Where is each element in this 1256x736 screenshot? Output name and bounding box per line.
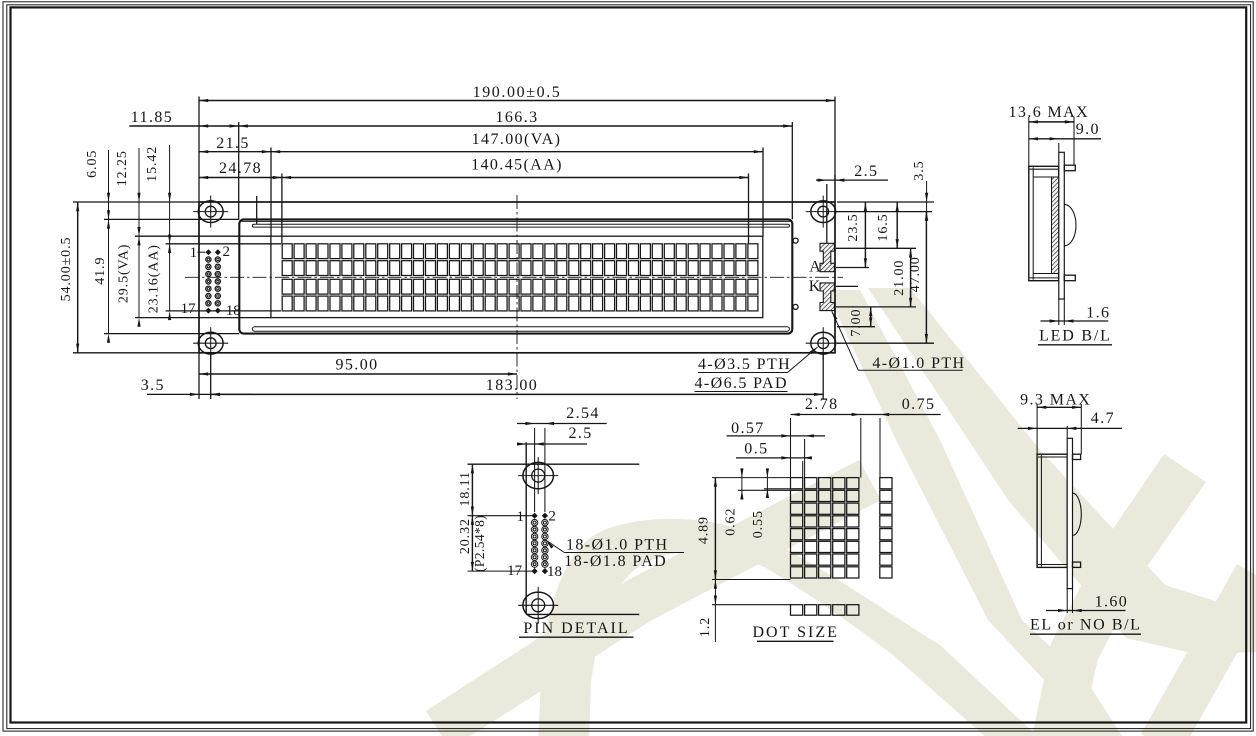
svg-text:4-Ø6.5 PAD: 4-Ø6.5 PAD: [695, 375, 788, 392]
svg-text:17: 17: [181, 301, 197, 317]
svg-text:(P2.54*8): (P2.54*8): [472, 515, 487, 572]
svg-text:4.89: 4.89: [697, 516, 712, 544]
svg-text:1.60: 1.60: [1095, 594, 1129, 611]
svg-text:16.5: 16.5: [876, 213, 891, 241]
svg-text:2.5: 2.5: [854, 163, 878, 180]
svg-text:3.5: 3.5: [912, 160, 927, 180]
svg-text:15.42: 15.42: [145, 146, 160, 182]
svg-text:47.00: 47.00: [908, 256, 923, 292]
svg-text:1: 1: [190, 245, 198, 261]
svg-text:0.5: 0.5: [744, 441, 768, 458]
svg-text:23.16(AA): 23.16(AA): [146, 244, 161, 313]
svg-text:0.57: 0.57: [731, 420, 765, 437]
svg-text:9.0: 9.0: [1076, 121, 1100, 138]
svg-text:4.7: 4.7: [1091, 410, 1115, 427]
svg-text:1.6: 1.6: [1086, 305, 1110, 322]
svg-text:EL or NO B/L: EL or NO B/L: [1030, 617, 1141, 634]
svg-text:18-Ø1.8 PAD: 18-Ø1.8 PAD: [564, 553, 667, 570]
svg-text:41.9: 41.9: [93, 257, 108, 285]
svg-text:4-Ø1.0 PTH: 4-Ø1.0 PTH: [872, 355, 965, 372]
svg-text:1.2: 1.2: [698, 617, 713, 637]
svg-text:183.00: 183.00: [486, 377, 538, 394]
svg-text:0.62: 0.62: [724, 508, 739, 536]
svg-text:1: 1: [517, 509, 525, 525]
svg-text:9.3 MAX: 9.3 MAX: [1020, 392, 1091, 409]
svg-text:2.5: 2.5: [568, 425, 592, 442]
svg-text:3.5: 3.5: [141, 377, 165, 394]
svg-text:95.00: 95.00: [336, 357, 379, 374]
svg-text:2.54: 2.54: [566, 405, 600, 422]
svg-text:21.00: 21.00: [892, 260, 907, 296]
svg-text:4-Ø3.5 PTH: 4-Ø3.5 PTH: [698, 356, 791, 373]
svg-text:17: 17: [507, 563, 523, 579]
svg-text:A: A: [809, 259, 821, 276]
svg-text:LED B/L: LED B/L: [1039, 328, 1112, 345]
svg-text:140.45(AA): 140.45(AA): [471, 157, 563, 174]
svg-text:2: 2: [548, 509, 556, 525]
svg-text:0.55: 0.55: [751, 510, 766, 538]
svg-text:DOT SIZE: DOT SIZE: [753, 624, 839, 641]
svg-text:18: 18: [547, 564, 562, 580]
svg-text:190.00±0.5: 190.00±0.5: [473, 84, 562, 101]
svg-text:13.6 MAX: 13.6 MAX: [1009, 104, 1090, 121]
svg-text:12.25: 12.25: [115, 150, 130, 186]
svg-text:29.5(VA): 29.5(VA): [116, 244, 131, 303]
svg-text:7.00: 7.00: [849, 309, 864, 337]
svg-text:11.85: 11.85: [131, 109, 173, 126]
svg-text:23.5: 23.5: [846, 213, 861, 241]
svg-text:PIN DETAIL: PIN DETAIL: [523, 620, 629, 637]
svg-text:166.3: 166.3: [496, 109, 539, 126]
svg-text:2: 2: [222, 244, 230, 260]
svg-text:K: K: [809, 278, 821, 295]
svg-text:24.78: 24.78: [219, 160, 262, 177]
svg-text:21.5: 21.5: [216, 135, 250, 152]
svg-text:18-Ø1.0 PTH: 18-Ø1.0 PTH: [566, 537, 669, 554]
svg-text:6.05: 6.05: [85, 150, 100, 178]
svg-text:147.00(VA): 147.00(VA): [472, 131, 562, 148]
svg-text:2.78: 2.78: [805, 396, 839, 413]
svg-text:20.32: 20.32: [458, 518, 473, 554]
svg-text:18.11: 18.11: [458, 471, 473, 506]
svg-text:0.75: 0.75: [902, 396, 936, 413]
svg-text:54.00±0.5: 54.00±0.5: [59, 237, 74, 302]
